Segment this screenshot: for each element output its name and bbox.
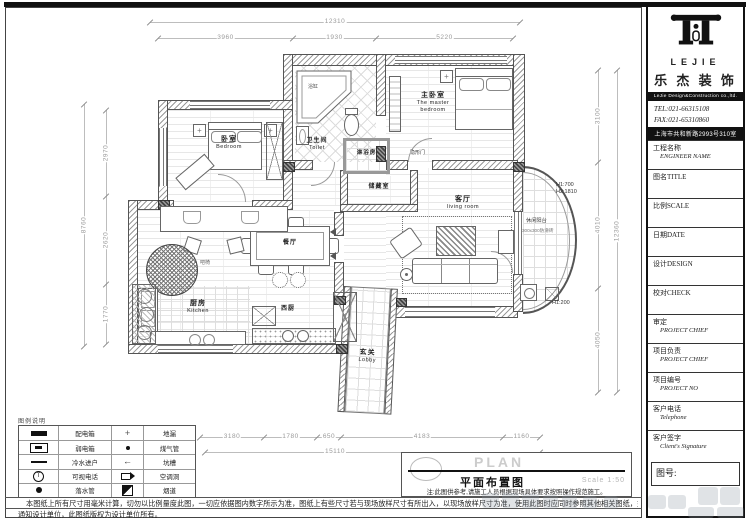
title-block-field: 设计DESIGN (648, 256, 743, 285)
field-label-cn: 比例SCALE (653, 201, 743, 211)
field-label-cn: 工程名称 (653, 143, 743, 153)
company-name-cn: 乐 杰 装 饰 (648, 70, 743, 89)
watermark-badge (604, 496, 618, 509)
plan-watermark-text: PLAN (474, 454, 524, 470)
company-contact: TEL:021-66315108 FAX:021-65310860 (648, 101, 743, 127)
field-label-en: PROJECT CHIEF (653, 327, 743, 334)
legend-row: 弱电箱煤气管 (19, 440, 195, 454)
title-block-field: 比例SCALE (648, 198, 743, 227)
entry-cabinet (333, 292, 357, 342)
toilet-label-en: Toilet (296, 145, 338, 152)
floor-lamp (400, 268, 413, 281)
field-label-en: Telephone (653, 414, 743, 421)
watermark-badge (717, 507, 744, 518)
lobby-label: 玄关 Lobby (347, 348, 388, 365)
basket (290, 272, 306, 288)
h1-700: H1:700 (556, 182, 577, 189)
dimension-line (200, 437, 540, 438)
toilet-wc (344, 114, 359, 136)
living-window (405, 307, 495, 317)
title-block-fields: 工程名称ENGINEER NAME图名TITLE比例SCALE日期DATE设计D… (648, 140, 743, 459)
distribution-box-icon (19, 426, 59, 440)
bedroom-label-en: Bedroom (198, 144, 260, 151)
title-block-field: 客户电话Telephone (648, 401, 743, 430)
watermark-badge (543, 495, 558, 509)
dimension-value: 2620 (103, 231, 110, 249)
legend-label: 冷水进户 (59, 455, 112, 468)
downpipe-icon (19, 484, 59, 497)
kitchen-counter-bottom (150, 331, 246, 345)
legend-row: 配电箱+地漏 (19, 426, 195, 440)
dimension-value: 3960 (216, 34, 234, 41)
legend-label: 煤气管 (144, 441, 195, 454)
flue-icon (112, 484, 144, 497)
watermark-badge (668, 495, 686, 509)
field-label-en: PROJECT NO (653, 385, 743, 392)
lejie-logo-icon (667, 12, 725, 54)
ac-hole-icon (112, 470, 144, 483)
title-block-circle (410, 457, 442, 481)
opening-marker (330, 228, 336, 236)
dimension-tick (81, 343, 87, 349)
hidden-door-label: 隐形门 (410, 150, 425, 156)
title-block-field: 审定PROJECT CHIEF (648, 314, 743, 343)
watermark-badge (583, 496, 597, 509)
master-label-cn: 主卧室 (405, 92, 461, 100)
shower-label: 淋浴房 (344, 150, 389, 157)
dimension-value: 15110 (324, 448, 346, 455)
logo-wordmark: LEJIE (648, 57, 743, 67)
kitchen-label-cn: 厨房 (168, 300, 228, 308)
height-annotation-1: H1:700 H2:1810 (556, 182, 577, 196)
pier (336, 344, 348, 354)
title-block-field: 校对CHECK (648, 285, 743, 314)
field-label-en: Client's Signature (653, 443, 743, 450)
bathtub-label: 浴缸 (308, 84, 318, 90)
pillow (486, 78, 511, 91)
floor-drain-icon: + (112, 426, 144, 440)
dimension-tick (614, 389, 620, 395)
sofa (412, 258, 498, 284)
shower-label-cn: 淋浴房 (344, 150, 389, 157)
legend-row: 落水管烟道 (19, 483, 195, 497)
dimension-tick (510, 35, 516, 41)
wall-toilet-master (376, 54, 386, 116)
bathtub (296, 70, 352, 124)
dimension-value: 1780 (281, 433, 299, 440)
dimension-value: 8760 (81, 216, 88, 234)
wall-master-bottom-b (432, 160, 518, 170)
title-block-sidebar: LEJIE 乐 杰 装 饰 LeJie Design&Construction … (646, 5, 745, 518)
balcony-label: 休闲阳台 (526, 218, 547, 225)
master-window (395, 56, 507, 64)
h2-1810: H2:1810 (556, 189, 577, 196)
height-annotation-2: H1:200 (552, 300, 570, 307)
dimension-tick (103, 341, 109, 347)
pier (283, 162, 295, 172)
watermark-badge (720, 487, 740, 505)
dimension-tick (537, 434, 543, 440)
storage-label: 储藏室 (350, 184, 408, 191)
balcony-slider-window (514, 212, 522, 274)
dimension-value: 1770 (103, 305, 110, 323)
rattan-chair-label: 吧椅 (200, 260, 210, 266)
dimension-value: 3180 (223, 433, 241, 440)
watermark-badge (562, 495, 577, 509)
field-label-cn: 项目编号 (653, 375, 743, 385)
watermark-badge (502, 493, 519, 508)
watermark-badge (698, 487, 718, 505)
company-tel: TEL:021-66315108 (654, 104, 743, 115)
dimension-value: 4050 (595, 331, 602, 349)
dimension-value: 12360 (614, 220, 621, 243)
cold-water-inlet-icon (19, 455, 59, 468)
nightstand: + (440, 70, 453, 83)
title-block: PLAN 平面布置图 Scale 1:50 注:此图供参考,请施工人员根据现场具… (401, 452, 632, 497)
opening-marker (330, 252, 336, 260)
bedroom-window (190, 101, 270, 109)
storage-label-cn: 储藏室 (350, 184, 408, 191)
dimension-value: 5220 (435, 34, 453, 41)
gas-pipe-icon (112, 441, 144, 454)
dimension-tick (595, 389, 601, 395)
side-table (498, 230, 514, 254)
dimension-value: 2970 (103, 144, 110, 162)
master-bed (455, 68, 513, 130)
balcony-tile-note: 300x300防滑砖 (522, 228, 553, 234)
watermark-badge (482, 493, 499, 508)
west-kitchen-label-cn: 西厨 (268, 306, 308, 313)
drawing-sheet: 玄关 Lobby + + (0, 0, 750, 525)
title-block-field: 客户签字Client's Signature (648, 430, 743, 459)
planter (132, 284, 156, 344)
wall-storage-bottom (340, 204, 418, 212)
toilet-label-cn: 卫生间 (296, 138, 338, 145)
field-label-cn: 图名TITLE (653, 172, 743, 182)
sink-bowl (297, 330, 309, 342)
living-label: 客厅 living room (428, 196, 498, 211)
dimension-value: 650 (322, 433, 336, 440)
company-logo: LEJIE (648, 7, 743, 67)
toilet-tank (345, 108, 358, 115)
west-kitchen-label: 西厨 (268, 306, 308, 313)
legend-label: 烟道 (144, 484, 195, 497)
study-desk (160, 206, 288, 232)
title-block-field: 图名TITLE (648, 169, 743, 198)
tv-cabinet (389, 76, 401, 132)
dimension-value: 12310 (324, 18, 347, 25)
weak-current-box-icon (19, 441, 59, 454)
dimension-value: 4183 (413, 433, 431, 440)
washing-machine (520, 284, 537, 301)
sink-bowl (282, 330, 294, 342)
field-label-cn: 审定 (653, 317, 743, 327)
kitchen-label-en: Kitchen (168, 308, 228, 315)
bedroom-label-cn: 卧室 (198, 136, 260, 144)
balcony-cabinet (545, 287, 559, 301)
field-label-cn: 校对CHECK (653, 288, 743, 298)
master-label-en: The master bedroom (405, 100, 461, 113)
legend-label: 空调洞 (144, 470, 195, 483)
watermark-badge (522, 494, 539, 509)
company-address: 上海市共和新路2993号310室 (648, 127, 743, 140)
pier (513, 162, 525, 172)
living-label-en: living room (428, 204, 498, 211)
dining-label-cn: 餐厅 (262, 240, 318, 247)
wall-balcony-a (513, 170, 523, 212)
toilet-label: 卫生间 Toilet (296, 138, 338, 152)
legend-title: 图例说明 (18, 416, 46, 425)
bedroom-label: 卧室 Bedroom (198, 136, 260, 151)
field-label-en: PROJECT CHIEF (653, 356, 743, 363)
field-label-cn: 客户电话 (653, 404, 743, 414)
field-label-en: ENGINEER NAME (653, 153, 743, 160)
dimension-tick (517, 19, 523, 25)
legend-label: 地漏 (144, 426, 195, 440)
title-underline (408, 470, 625, 472)
coffee-table (436, 226, 476, 256)
drawing-number-box: 图号: (651, 462, 740, 486)
living-label-cn: 客厅 (428, 196, 498, 204)
dimension-value: 4010 (595, 216, 602, 234)
dimension-value: 3100 (595, 107, 602, 125)
dimension-value: 1930 (325, 34, 343, 41)
field-label-cn: 项目负责 (653, 346, 743, 356)
drawing-number-label: 图号: (656, 468, 677, 478)
wardrobe (266, 122, 283, 180)
field-label-cn: 设计DESIGN (653, 259, 743, 269)
field-label-cn: 日期DATE (653, 230, 743, 240)
pillow (459, 78, 484, 91)
basket (272, 272, 288, 288)
legend-label: 弱电箱 (59, 441, 112, 454)
legend-row: T可视电话空调洞 (19, 469, 195, 483)
dining-chair (288, 217, 304, 227)
trough-icon: ← (112, 455, 144, 468)
kitchen-window (158, 345, 233, 353)
title-block-field: 工程名称ENGINEER NAME (648, 140, 743, 169)
note-line-2: 通知设计单位，此图纸版权为设计单位所有。 (18, 510, 162, 520)
legend-row: 冷水进户←坑槽 (19, 454, 195, 468)
title-block-field: 日期DATE (648, 227, 743, 256)
legend-table: 配电箱+地漏弱电箱煤气管冷水进户←坑槽T可视电话空调洞落水管烟道 (18, 425, 196, 498)
title-block-field: 项目编号PROJECT NO (648, 372, 743, 401)
pier (396, 298, 407, 307)
watermark-badge (648, 495, 666, 509)
kitchen-label: 厨房 Kitchen (168, 300, 228, 315)
wall-toilet-left (283, 54, 293, 210)
legend-label: 可视电话 (59, 470, 112, 483)
company-name-en: LeJie Design&Construction co.,ltd. (648, 92, 743, 101)
dining-chair (258, 265, 274, 275)
company-fax: FAX:021-65310860 (654, 115, 743, 126)
field-label-cn: 客户签字 (653, 433, 743, 443)
legend-label: 坑槽 (144, 455, 195, 468)
wall-master-right (513, 54, 525, 170)
video-phone-icon: T (19, 470, 59, 483)
master-label: 主卧室 The master bedroom (405, 92, 461, 114)
bedroom-side-window (159, 128, 167, 186)
drawing-scale: Scale 1:50 (582, 477, 625, 484)
dimension-value: 1160 (513, 433, 531, 440)
watermark-badge (688, 507, 714, 518)
dining-label: 餐厅 (262, 240, 318, 247)
west-kitchen-counter (252, 328, 336, 344)
legend-label: 落水管 (59, 484, 112, 497)
title-block-field: 项目负责PROJECT CHIEF (648, 343, 743, 372)
legend-label: 配电箱 (59, 426, 112, 440)
